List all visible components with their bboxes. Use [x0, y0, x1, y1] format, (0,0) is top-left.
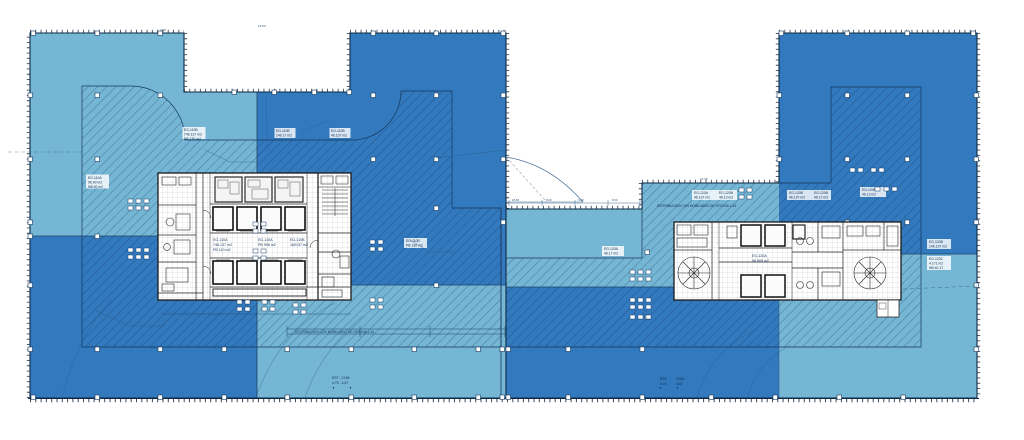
svg-text:8.00: 8.00: [612, 198, 618, 202]
svg-text:COM: COM: [676, 377, 684, 381]
svg-text:PB 908 m2: PB 908 m2: [258, 243, 276, 247]
svg-text:EST.: EST.: [660, 377, 667, 381]
svg-text:746.137 m2: 746.137 m2: [213, 243, 232, 247]
svg-text:EG-110A: EG-110A: [213, 238, 228, 242]
svg-text:18.90: 18.90: [512, 198, 519, 202]
svg-text:EST - COM: EST - COM: [332, 376, 350, 380]
svg-text:746.137 m2: 746.137 m2: [184, 133, 202, 137]
svg-text:NB 40 m2: NB 40 m2: [88, 185, 103, 189]
svg-text:EG-110B: EG-110B: [290, 238, 305, 242]
svg-text:EG-110B: EG-110B: [406, 239, 420, 243]
svg-text:EG-120B: EG-120B: [789, 191, 804, 195]
svg-text:EG-120A: EG-120A: [694, 191, 709, 195]
svg-text:NB 130 m2: NB 130 m2: [184, 137, 201, 141]
svg-text:EG-120B: EG-120B: [862, 188, 877, 192]
svg-text:4.50: 4.50: [160, 28, 166, 32]
svg-text:146.137 m2: 146.137 m2: [929, 245, 947, 249]
svg-text:▼: ▼: [659, 386, 662, 390]
svg-text:46.17 m2: 46.17 m2: [604, 252, 618, 256]
svg-text:EG-110B: EG-110B: [276, 129, 290, 133]
svg-text:NB 40.17: NB 40.17: [929, 266, 943, 270]
svg-text:DISTRIBUCION CON MOBILIARIO DE: DISTRIBUCION CON MOBILIARIO DE OFICINA 1…: [657, 204, 736, 208]
svg-text:EG-120A: EG-120A: [752, 254, 767, 258]
svg-text:96.40 m2: 96.40 m2: [88, 181, 102, 185]
svg-text:▼: ▼: [332, 386, 335, 390]
svg-text:EG-120C: EG-120C: [929, 257, 944, 261]
svg-text:4.60: 4.60: [578, 198, 584, 202]
svg-text:160137 m2: 160137 m2: [290, 243, 308, 247]
svg-text:146.17 m2: 146.17 m2: [276, 134, 292, 138]
svg-text:16.60: 16.60: [258, 24, 266, 28]
svg-text:4.171 m2: 4.171 m2: [929, 262, 943, 266]
svg-text:EG-110B: EG-110B: [184, 128, 198, 132]
svg-text:8.00: 8.00: [546, 198, 552, 202]
svg-text:EG-110A: EG-110A: [88, 176, 102, 180]
svg-text:EG-120B: EG-120B: [929, 240, 944, 244]
svg-text:EG-120A: EG-120A: [604, 247, 619, 251]
svg-text:46.17 m2: 46.17 m2: [814, 196, 828, 200]
svg-text:46.137 m2: 46.137 m2: [694, 196, 710, 200]
svg-text:EG-120B: EG-120B: [719, 191, 734, 195]
svg-text:46.13 m2: 46.13 m2: [862, 193, 876, 197]
svg-text:4.70 - 4.67: 4.70 - 4.67: [332, 381, 348, 385]
svg-text:▼: ▼: [676, 386, 679, 390]
svg-text:12.35: 12.35: [700, 177, 708, 181]
svg-text:EG-120B: EG-120B: [814, 191, 829, 195]
svg-text:96.909 m2: 96.909 m2: [752, 259, 769, 263]
svg-text:PB 110 m2: PB 110 m2: [213, 248, 231, 252]
svg-text:46.137 m2: 46.137 m2: [789, 196, 805, 200]
svg-text:EG-110B: EG-110B: [331, 129, 345, 133]
svg-text:PB 130 m2: PB 130 m2: [406, 244, 423, 248]
svg-text:EG-110A: EG-110A: [258, 238, 273, 242]
svg-text:DISTRIBUCION CON MOBILIARIO DE: DISTRIBUCION CON MOBILIARIO DE OFICINA 1…: [295, 330, 374, 334]
svg-text:46.13 m2: 46.13 m2: [719, 196, 733, 200]
svg-text:▼: ▼: [349, 386, 352, 390]
svg-text:46.137 m2: 46.137 m2: [331, 134, 347, 138]
